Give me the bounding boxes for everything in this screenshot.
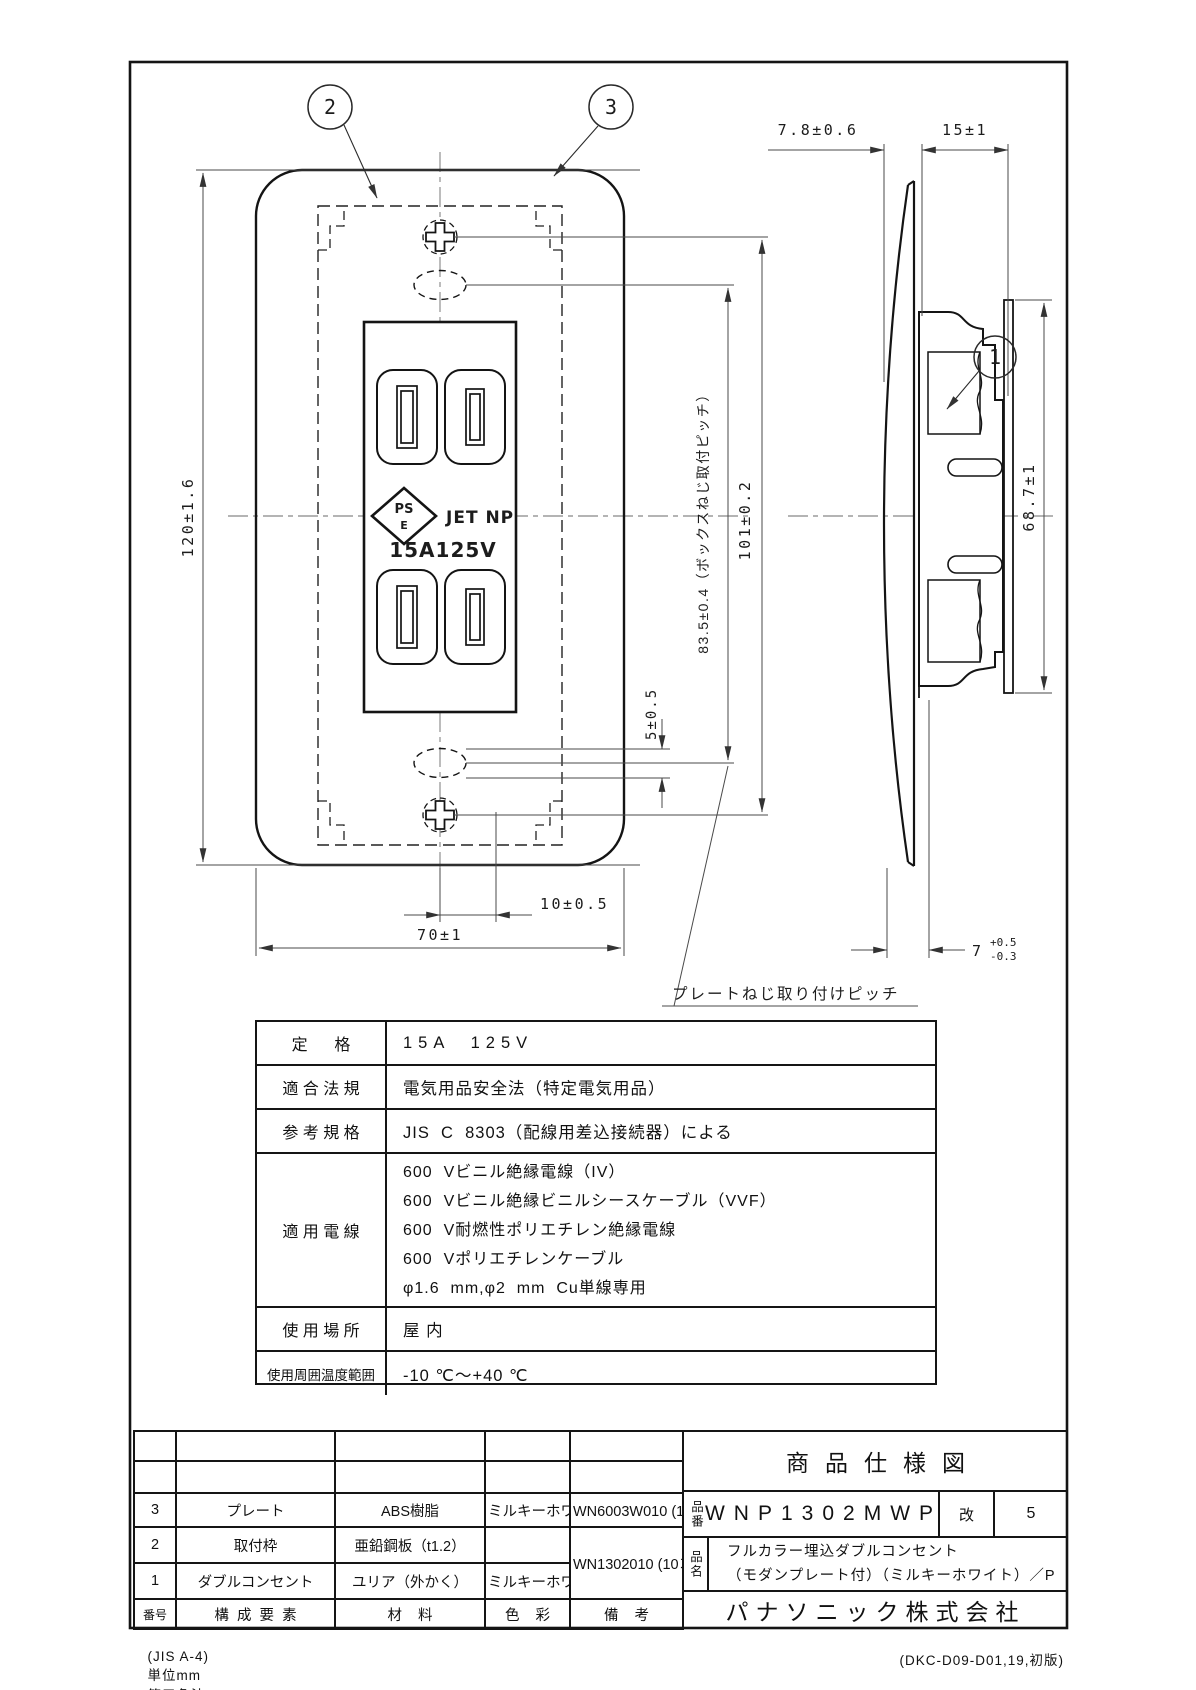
jet-mark-text: JET NP	[445, 508, 514, 528]
spec-label: 参 考 規 格	[257, 1110, 387, 1152]
callout-number-1: 1	[989, 345, 1001, 369]
dim-frame-height: 68.7±1	[1020, 462, 1038, 531]
revision-label: 改	[938, 1492, 993, 1538]
part-material: 亜鉛鋼板（t1.2）	[335, 1527, 485, 1563]
dim-plate-screw-pitch: 101±0.2	[736, 480, 754, 561]
dim-rear-depth: 7	[972, 942, 984, 960]
wire-line: 600 Vビニル絶縁ビニルシースケーブル（VVF）	[403, 1187, 777, 1216]
spec-row-law: 適 合 法 規 電気用品安全法（特定電気用品）	[257, 1064, 935, 1108]
parts-header-color: 色 彩	[485, 1599, 570, 1629]
front-view: PS E JET NP 15A125V	[228, 152, 748, 872]
footer-left: (JIS A-4) 単位mm 第三角法	[138, 1634, 230, 1690]
unit-note: 単位mm	[148, 1668, 202, 1683]
plate-screw-top	[426, 223, 454, 251]
part-name-label: 品名	[684, 1538, 707, 1590]
parts-list-table: 3 プレート ABS樹脂 ミルキーホワイト WN6003W010 (10枚入) …	[133, 1430, 684, 1630]
dim-slot-width: 10±0.5	[540, 895, 609, 913]
spec-label: 定 格	[257, 1022, 387, 1064]
part-material: ユリア（外かく）	[335, 1563, 485, 1599]
pse-mark-text-e: E	[400, 519, 408, 532]
dim-rear-depth-tol-upper: +0.5	[990, 936, 1017, 949]
front-view-dimensions	[196, 170, 918, 1006]
spec-value: -10 ℃～+40 ℃	[387, 1352, 935, 1395]
pse-mark-text: PS	[395, 502, 414, 517]
dim-body-depth: 15±1	[942, 121, 988, 139]
parts-empty-row	[134, 1461, 683, 1493]
dim-height: 120±1.6	[179, 477, 197, 558]
wire-line: 600 V耐燃性ポリエチレン絶縁電線	[403, 1216, 676, 1245]
spec-table: 定 格 15A 125V 適 合 法 規 電気用品安全法（特定電気用品） 参 考…	[255, 1020, 937, 1385]
side-view-dimensions	[768, 144, 1052, 958]
plate-screw-bottom	[426, 801, 454, 829]
spec-row-wires: 適 用 電 線 600 Vビニル絶縁電線（IV） 600 Vビニル絶縁ビニルシー…	[257, 1152, 935, 1306]
rating-mark-text: 15A125V	[389, 538, 497, 562]
part-name-line2: （モダンプレート付）（ミルキーホワイト）／P	[727, 1564, 1067, 1588]
drawing-sheet: PS E JET NP 15A125V 120	[0, 0, 1196, 1690]
spec-value: JIS C 8303（配線用差込接続器）による	[387, 1110, 935, 1152]
callout-number-3: 3	[605, 95, 617, 119]
part-name-label-cell: 品名	[682, 1538, 709, 1592]
dim-box-screw-pitch: 83.5±0.4（ボックスねじ取付ピッチ）	[695, 386, 711, 653]
wire-line: φ1.6 mm,φ2 mm Cu単線専用	[403, 1274, 647, 1303]
spec-row-standard: 参 考 規 格 JIS C 8303（配線用差込接続器）による	[257, 1108, 935, 1152]
parts-header-component: 構 成 要 素	[176, 1599, 335, 1629]
part-material: ABS樹脂	[335, 1493, 485, 1527]
company-name: パナソニック株式会社	[682, 1592, 1067, 1628]
part-name-line1: フルカラー埋込ダブルコンセント	[727, 1540, 1067, 1564]
frame-corner-step	[318, 206, 344, 250]
revision-number: 5	[993, 1492, 1067, 1538]
wire-line: 600 Vポリエチレンケーブル	[403, 1245, 624, 1274]
plate-screw-pitch-label: プレートねじ取り付けピッチ	[672, 985, 900, 1003]
parts-header-no: 番号	[134, 1599, 176, 1629]
spec-row-temperature: 使用周囲温度範囲 -10 ℃～+40 ℃	[257, 1350, 935, 1395]
parts-header-material: 材 料	[335, 1599, 485, 1629]
dim-plate-projection: 7.8±0.6	[778, 121, 859, 139]
wire-line: 600 Vビニル絶縁電線（IV）	[403, 1158, 625, 1187]
parts-row-frame: 2 取付枠 亜鉛鋼板（t1.2） WN1302010 (10コ入)	[134, 1527, 683, 1563]
parts-header-row: 番号 構 成 要 素 材 料 色 彩 備 考	[134, 1599, 683, 1629]
title-block-title: 商品仕様図	[682, 1430, 1067, 1492]
part-component: ダブルコンセント	[176, 1563, 335, 1599]
callout-number-2: 2	[324, 95, 336, 119]
part-name: フルカラー埋込ダブルコンセント （モダンプレート付）（ミルキーホワイト）／P	[709, 1538, 1067, 1592]
paper-size: (JIS A-4)	[148, 1649, 210, 1664]
spec-row-rating: 定 格 15A 125V	[257, 1022, 935, 1064]
spec-value: 15A 125V	[387, 1022, 935, 1064]
dim-width: 70±1	[417, 926, 463, 944]
part-color	[485, 1527, 570, 1563]
frame-corner-step	[318, 801, 344, 845]
part-color: ミルキーホワイト	[485, 1563, 570, 1599]
plate-side-profile	[884, 185, 908, 862]
dim-rear-depth-tol-lower: -0.3	[990, 950, 1017, 963]
part-color: ミルキーホワイト	[485, 1493, 570, 1527]
frame-corner-step	[536, 206, 562, 250]
part-number: WNP1302MWP	[709, 1492, 938, 1538]
part-no: 3	[134, 1493, 176, 1527]
spec-label: 適 合 法 規	[257, 1066, 387, 1108]
dim-slot-height: 5±0.5	[644, 688, 660, 740]
parts-empty-row	[134, 1431, 683, 1461]
side-view	[788, 181, 1058, 866]
spec-value: 600 Vビニル絶縁電線（IV） 600 Vビニル絶縁ビニルシースケーブル（VV…	[387, 1154, 935, 1306]
spec-value: 屋 内	[387, 1308, 935, 1350]
part-no: 1	[134, 1563, 176, 1599]
part-component: 取付枠	[176, 1527, 335, 1563]
spec-label: 適 用 電 線	[257, 1154, 387, 1306]
spec-value: 電気用品安全法（特定電気用品）	[387, 1066, 935, 1108]
part-component: プレート	[176, 1493, 335, 1527]
parts-row-plate: 3 プレート ABS樹脂 ミルキーホワイト WN6003W010 (10枚入)	[134, 1493, 683, 1527]
part-note: WN1302010 (10コ入)	[570, 1527, 683, 1599]
footer-right: (DKC-D09-D01,19,初版)	[890, 1634, 1064, 1669]
part-no: 2	[134, 1527, 176, 1563]
spec-label: 使 用 場 所	[257, 1308, 387, 1350]
part-note: WN6003W010 (10枚入)	[570, 1493, 683, 1527]
spec-label: 使用周囲温度範囲	[257, 1352, 387, 1395]
parts-header-note: 備 考	[570, 1599, 683, 1629]
document-number: (DKC-D09-D01,19,初版)	[899, 1653, 1064, 1668]
frame-corner-step	[536, 801, 562, 845]
spec-row-location: 使 用 場 所 屋 内	[257, 1306, 935, 1350]
